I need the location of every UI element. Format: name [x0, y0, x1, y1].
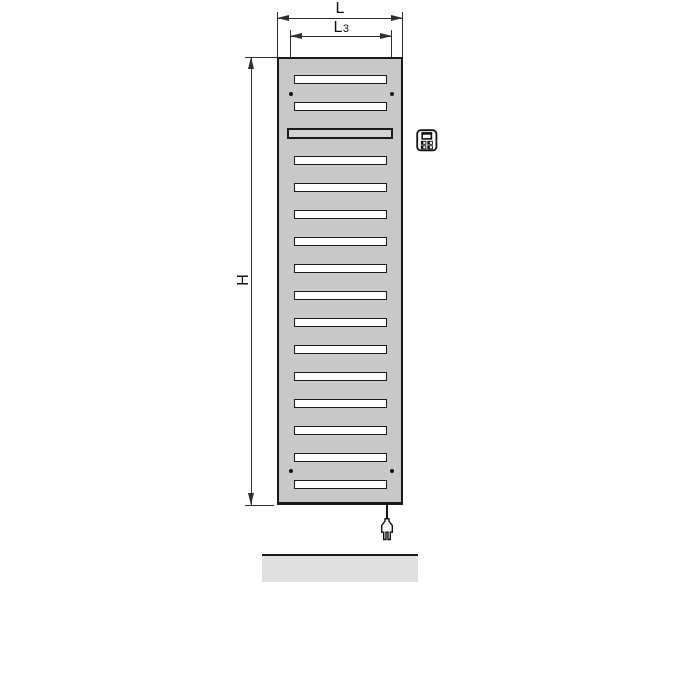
controller-icon — [416, 129, 438, 152]
radiator-slot — [294, 264, 387, 273]
dim-line-L3 — [290, 36, 392, 37]
radiator-slot — [294, 75, 387, 84]
radiator-slot — [294, 372, 387, 381]
dim-ext-L3-right — [391, 30, 392, 57]
radiator-slot — [294, 237, 387, 246]
diagram-canvas: L L3 H — [0, 0, 700, 700]
radiator-slot — [294, 345, 387, 354]
mounting-dot-top-left — [289, 92, 293, 96]
mounting-dot-bottom-left — [289, 469, 293, 473]
radiator-slot — [294, 426, 387, 435]
radiator-slot — [294, 453, 387, 462]
radiator-slot — [294, 156, 387, 165]
heating-element-slot — [287, 128, 393, 139]
dim-ext-H-top — [245, 57, 277, 58]
dim-label-L: L — [330, 1, 350, 16]
mounting-dot-bottom-right — [390, 469, 394, 473]
dim-label-H: H — [236, 269, 252, 291]
dim-ext-L-left — [277, 12, 278, 57]
radiator-slot — [294, 480, 387, 489]
radiator-slot — [294, 291, 387, 300]
dim-ext-L-right — [402, 12, 403, 57]
radiator-slot — [294, 183, 387, 192]
dim-ext-H-bottom — [245, 505, 274, 506]
dim-arrow-H-top — [248, 57, 254, 69]
radiator-slot — [294, 318, 387, 327]
dim-label-L3: L3 — [328, 20, 354, 35]
radiator-slot — [294, 102, 387, 111]
mounting-dot-top-right — [390, 92, 394, 96]
radiator-body — [277, 57, 403, 505]
radiator-slot — [294, 210, 387, 219]
dim-arrow-L-left — [277, 15, 289, 21]
dim-arrow-H-bottom — [248, 493, 254, 505]
dim-arrow-L3-left — [290, 33, 302, 39]
dim-ext-L3-left — [290, 30, 291, 57]
floor-strip — [262, 554, 418, 582]
radiator-slot — [294, 399, 387, 408]
power-plug-icon — [378, 518, 396, 543]
